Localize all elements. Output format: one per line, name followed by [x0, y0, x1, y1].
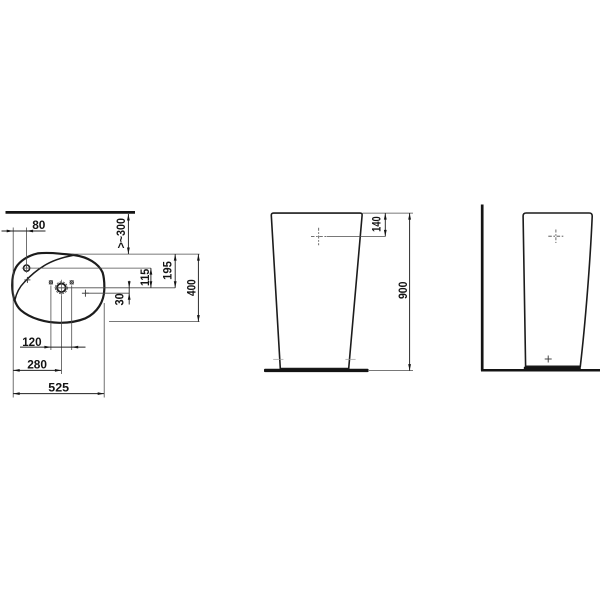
svg-text:120: 120 — [22, 335, 42, 349]
svg-text:400: 400 — [184, 279, 198, 296]
svg-text:30: 30 — [113, 293, 127, 305]
svg-text:280: 280 — [27, 357, 47, 371]
svg-text:525: 525 — [48, 380, 69, 394]
svg-text:900: 900 — [396, 281, 410, 299]
svg-text:195: 195 — [160, 261, 174, 280]
svg-text:>~300: >~300 — [114, 218, 128, 249]
svg-text:140: 140 — [369, 216, 383, 232]
svg-text:80: 80 — [32, 218, 45, 232]
svg-text:115: 115 — [138, 269, 152, 286]
